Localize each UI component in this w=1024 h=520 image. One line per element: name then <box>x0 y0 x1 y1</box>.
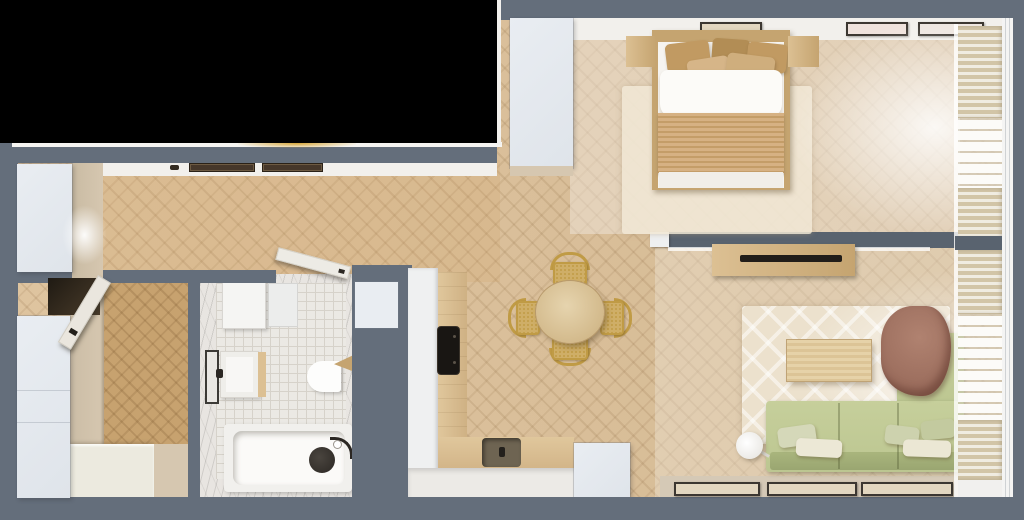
window-blind <box>958 188 1004 238</box>
leaning-artwork <box>861 482 953 496</box>
sofa-seat-seam <box>838 403 840 469</box>
wall-top <box>497 0 1024 20</box>
kitchen-tall-cabinet <box>574 443 630 500</box>
toilet <box>307 361 341 392</box>
cooktop-knob <box>453 361 456 364</box>
window-light-wash <box>790 20 960 235</box>
bed-blanket <box>658 113 784 173</box>
nightstand-left <box>626 36 656 67</box>
sofa-pillow <box>920 418 956 440</box>
bed-duvet <box>660 70 782 118</box>
window-blind <box>958 420 1004 480</box>
light-flare <box>62 205 107 265</box>
wall-niche <box>190 164 254 171</box>
bedroom-wardrobe <box>510 18 573 168</box>
bathroom-cabinet <box>268 283 298 327</box>
entry-bench <box>70 444 154 498</box>
cooktop <box>438 327 459 374</box>
ceiling-spotlight <box>170 165 179 170</box>
bedroom-wardrobe-base <box>510 166 573 176</box>
bathtub-knob <box>334 441 341 448</box>
bathroom-sink <box>220 351 259 398</box>
wall-entry-separator <box>188 272 200 500</box>
sink-wood-edge <box>258 352 266 397</box>
door-handle <box>338 269 345 274</box>
apartment-floorplan-render <box>0 0 1024 520</box>
cooktop-knob <box>453 335 456 338</box>
tv-screen <box>740 255 842 262</box>
leaning-artwork <box>674 482 760 496</box>
window-blind <box>958 26 1004 118</box>
leaning-artwork <box>767 482 857 496</box>
coffee-table <box>787 340 871 381</box>
window-blind <box>958 250 1004 314</box>
throw-blanket <box>881 306 951 396</box>
floor-lamp <box>736 432 763 459</box>
blacked-out-region <box>0 0 497 143</box>
sofa-pillow <box>796 438 843 458</box>
entry-floor <box>100 283 190 448</box>
wall-niche <box>263 164 322 171</box>
wardrobe-seam <box>17 422 70 423</box>
kitchen-faucet <box>499 447 505 457</box>
washing-machine <box>222 281 266 329</box>
kitchen-counter-front <box>408 268 438 500</box>
sheer-curtain <box>958 118 1004 188</box>
bed-foot-sheet <box>659 172 783 188</box>
sheer-curtain <box>958 314 1004 420</box>
wall-left <box>0 143 18 520</box>
dining-chair <box>600 301 624 335</box>
sofa-pillow <box>903 439 952 458</box>
door-handle <box>69 328 78 336</box>
dining-table <box>536 281 604 343</box>
kitchen-duct-shaft <box>355 282 398 328</box>
wardrobe-seam <box>17 390 70 391</box>
sink-faucet <box>216 369 223 378</box>
wall-divider-end-cap <box>650 232 669 247</box>
wall-right <box>1013 0 1024 520</box>
wall-bottom <box>0 497 1024 520</box>
blacked-out-region-edge <box>497 0 501 145</box>
entry-bench-side <box>154 444 190 498</box>
window-sill <box>958 480 1004 497</box>
